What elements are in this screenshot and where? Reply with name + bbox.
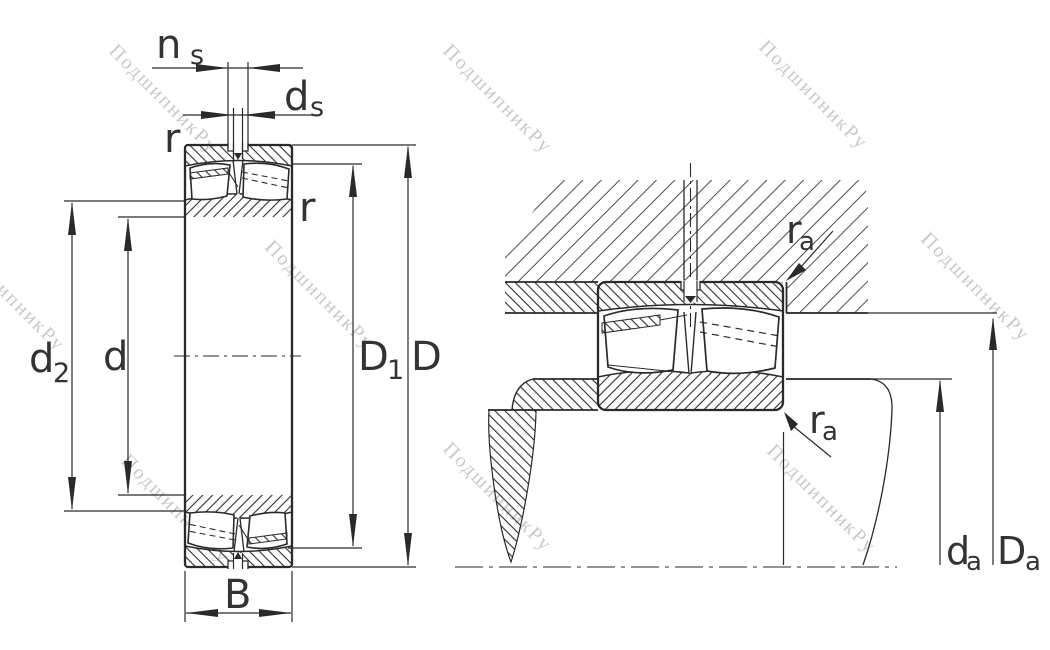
label-D: D [411,334,442,380]
label-d2: d [29,336,54,382]
label-ds: d [284,74,309,120]
label-da-sub: a [966,547,982,577]
watermark-text: ПодшипникРу [916,228,1034,346]
label-ns: n [156,22,181,68]
label-ra-housing-sub: a [799,227,815,257]
label-ns-sub: s [190,40,204,71]
label-r-outer: r [164,116,181,162]
label-d2-sub: 2 [53,358,70,389]
bearing-dimension-diagram: ПодшипникРу ПодшипникРу ПодшипникРу Подш… [0,0,1050,650]
label-ra-shaft-sub: a [822,417,838,447]
label-D1: D [358,334,389,380]
mounted-lubrication-groove [681,281,700,304]
label-ds-sub: s [310,92,324,123]
watermark-text: ПодшипникРу [438,40,556,158]
label-r-inner: r [299,185,316,231]
label-d: d [103,334,128,380]
mounted-bearing [598,281,783,411]
label-B: B [224,572,251,618]
watermark-text: ПодшипникРу [754,36,872,154]
watermark-text: ПодшипникРу [762,440,880,558]
left-figure-labels: n s d s r r d 2 d D 1 D B [29,22,442,618]
label-Da-sub: a [1025,547,1041,577]
label-D1-sub: 1 [387,355,404,386]
left-figure-bearing-section: n s d s r r d 2 d D 1 D B [29,22,442,622]
diagram-canvas: ПодшипникРу ПодшипникРу ПодшипникРу Подш… [0,0,1050,650]
label-Da: D [997,529,1026,573]
right-figure-mounting-section: r a r a d a D a [455,163,1041,577]
